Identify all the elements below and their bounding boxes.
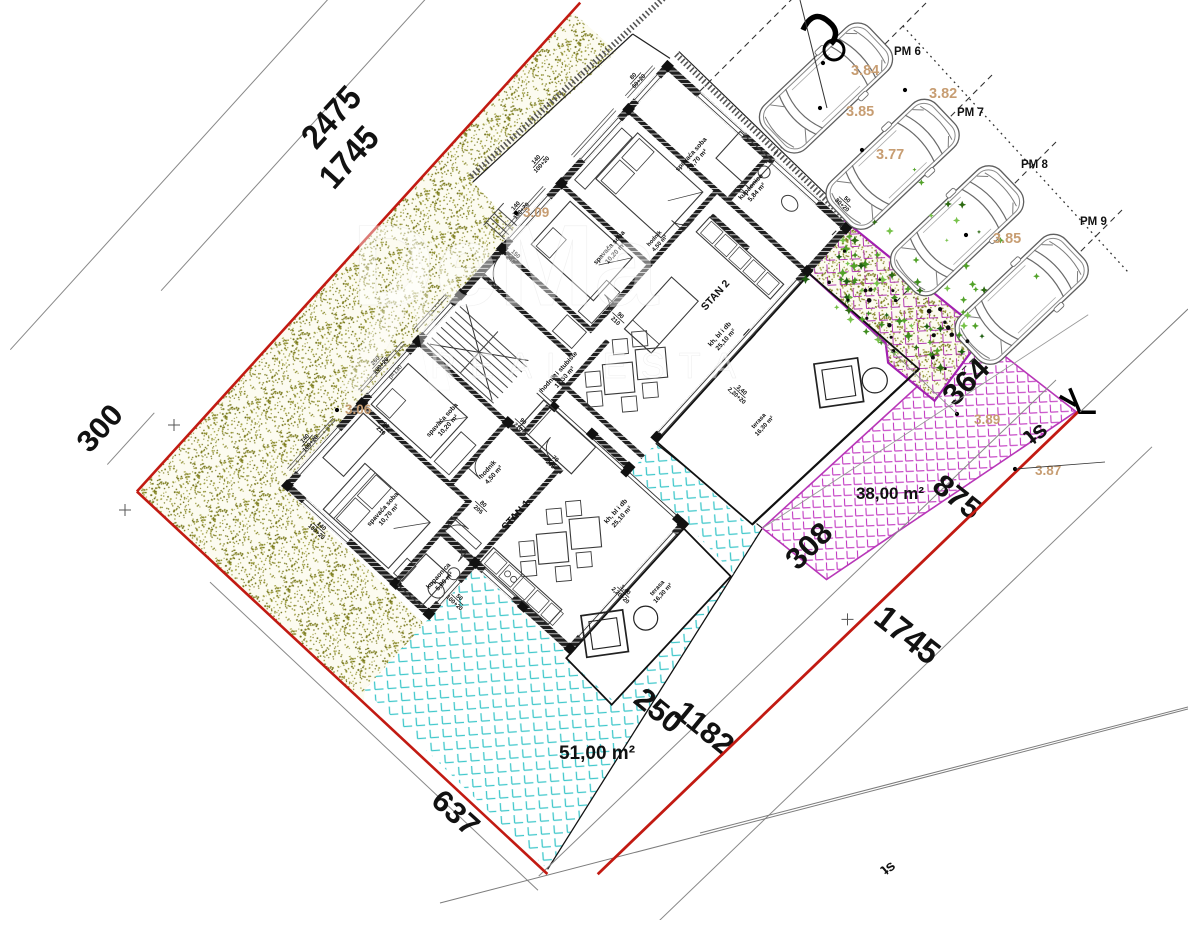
svg-text:PM 7: PM 7 <box>957 107 984 119</box>
svg-text:REAL ESTA: REAL ESTA <box>430 345 750 386</box>
svg-text:3.85: 3.85 <box>846 104 874 120</box>
svg-text:3.82: 3.82 <box>929 86 957 102</box>
svg-text:38,00 m²: 38,00 m² <box>856 484 924 503</box>
svg-text:3.85: 3.85 <box>993 231 1021 247</box>
svg-text:3.09: 3.09 <box>523 205 549 220</box>
svg-text:3.89: 3.89 <box>974 412 1000 427</box>
svg-text:3.06: 3.06 <box>345 402 372 417</box>
svg-text:51,00 m²: 51,00 m² <box>559 743 635 764</box>
svg-text:PM 8: PM 8 <box>1021 159 1048 171</box>
svg-text:3.87: 3.87 <box>1035 463 1061 478</box>
svg-text:PM 6: PM 6 <box>894 46 921 58</box>
svg-text:3.84: 3.84 <box>851 63 879 79</box>
svg-text:PM 9: PM 9 <box>1080 216 1107 228</box>
svg-text:3.77: 3.77 <box>876 147 904 163</box>
